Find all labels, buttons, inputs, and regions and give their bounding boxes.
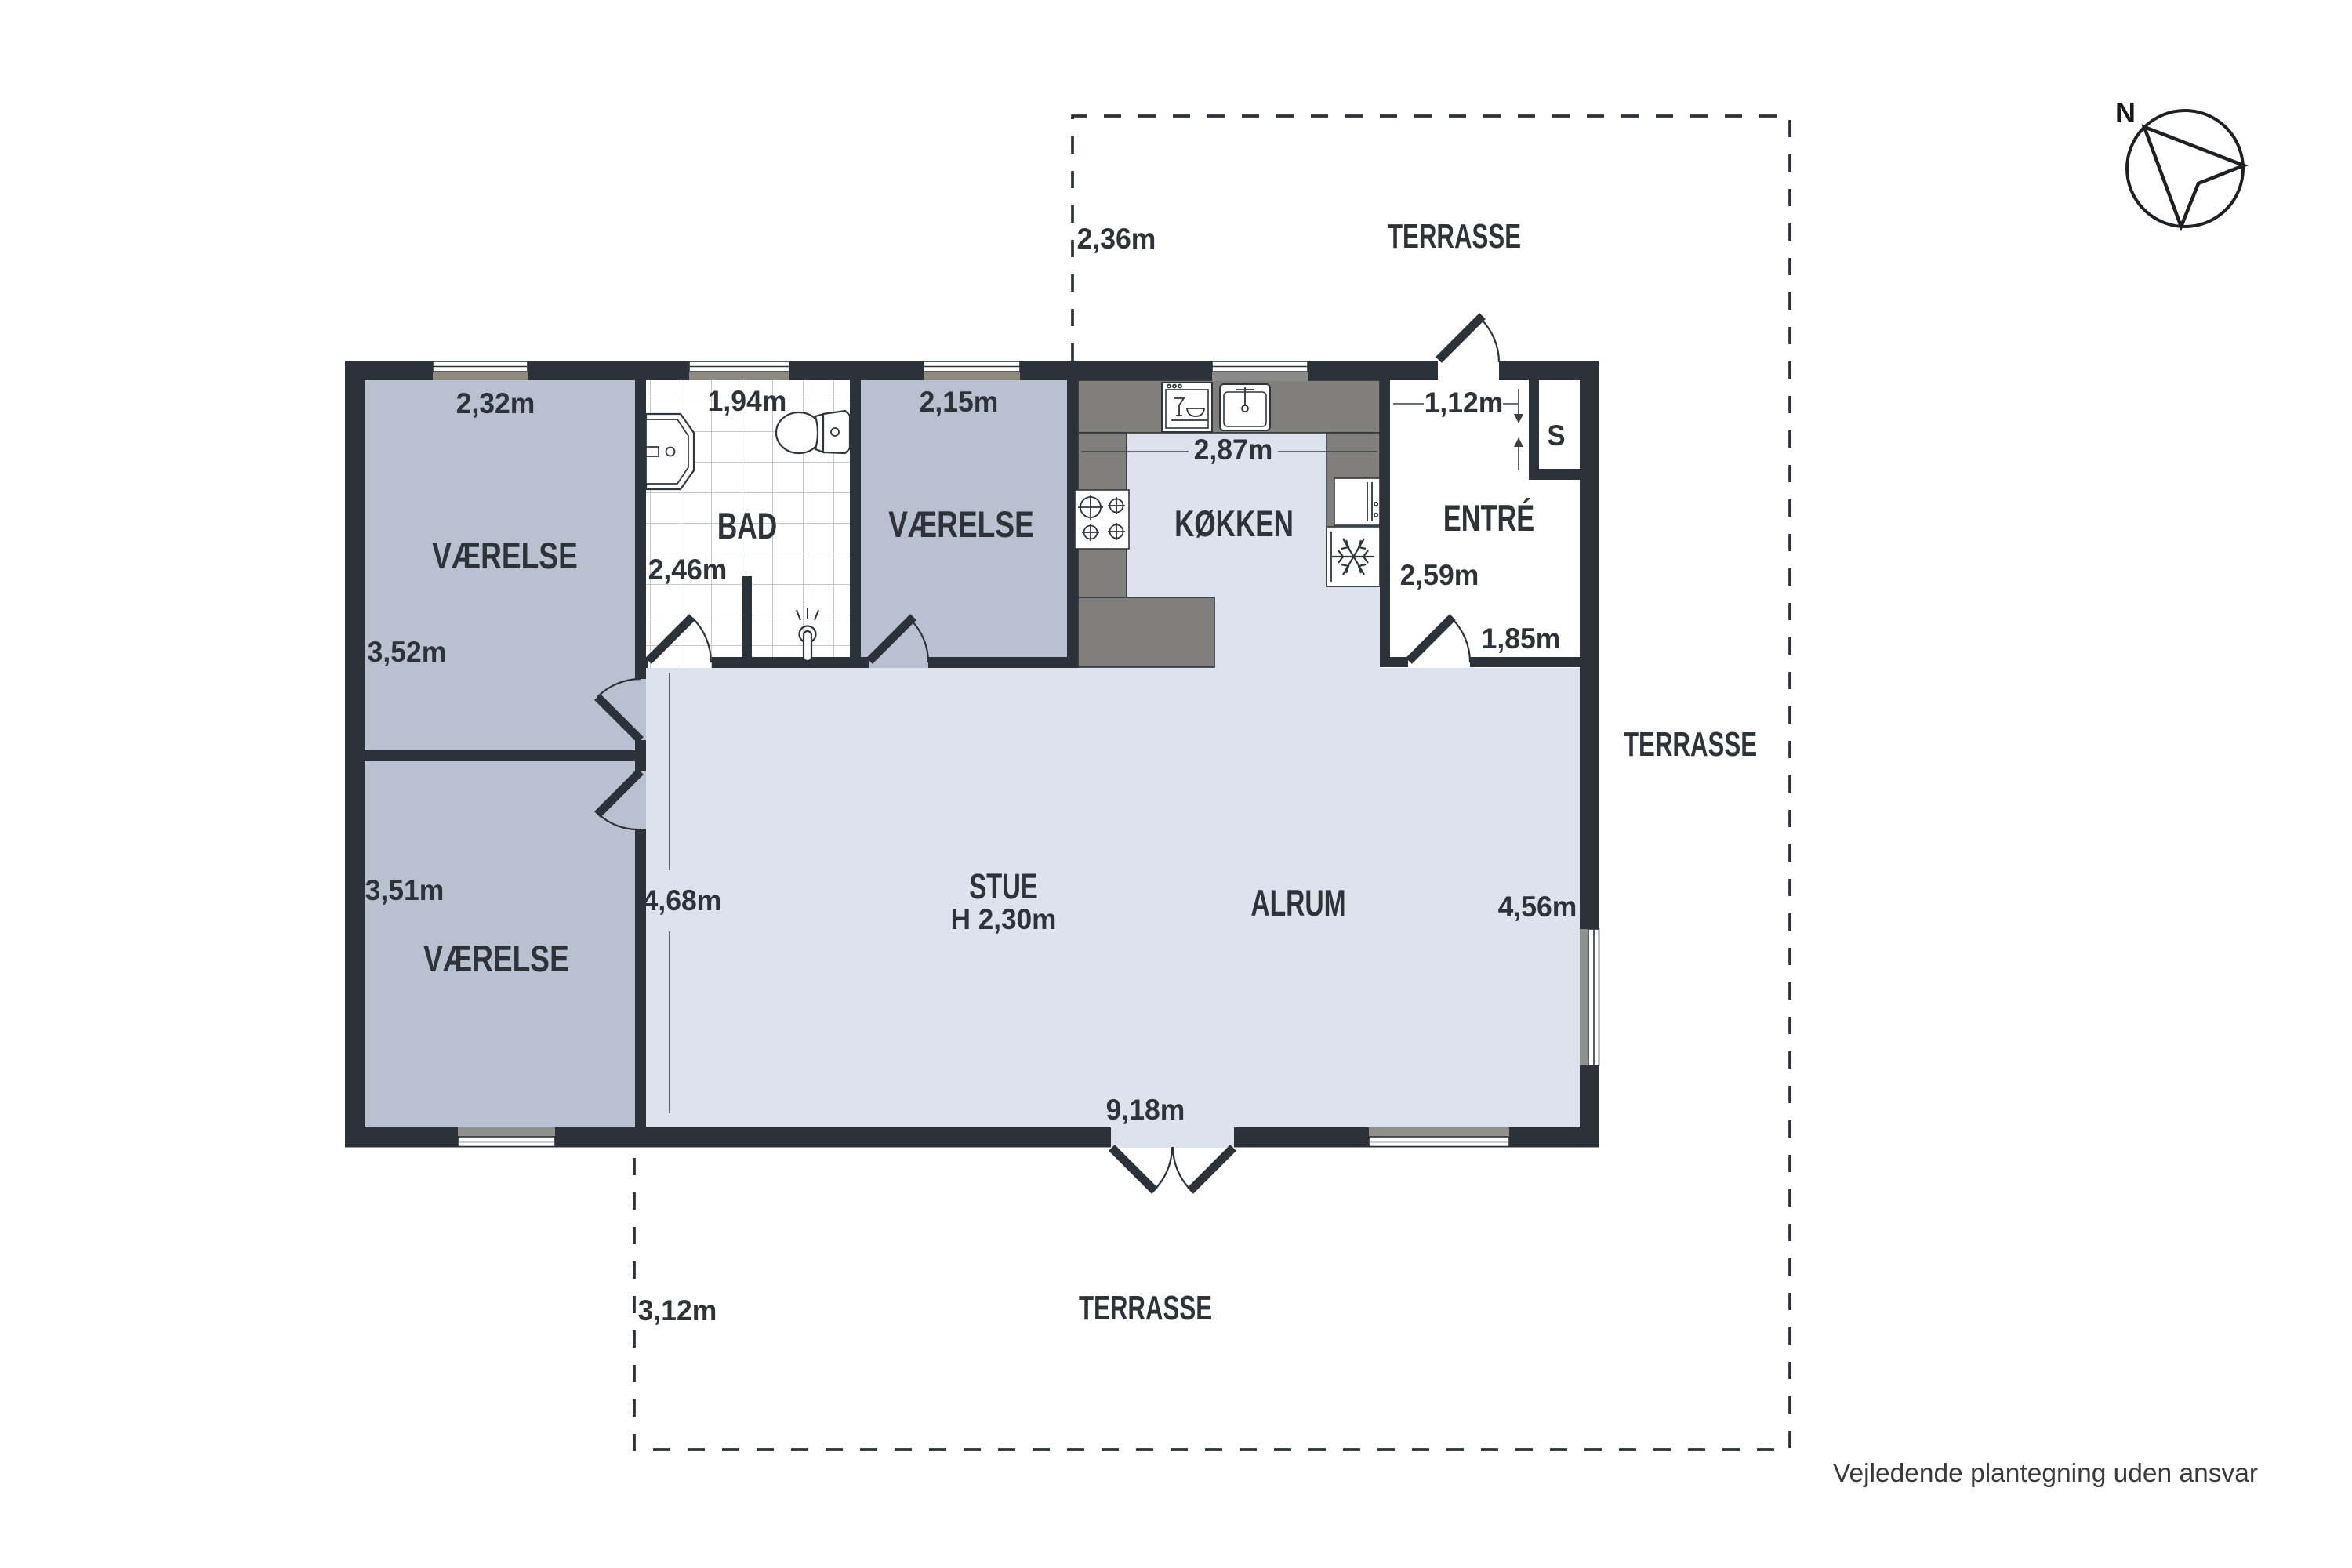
svg-text:9,18m: 9,18m <box>1106 1093 1185 1126</box>
svg-text:STUE: STUE <box>969 867 1038 906</box>
svg-text:TERRASSE: TERRASSE <box>1388 217 1521 256</box>
svg-text:3,51m: 3,51m <box>365 873 445 906</box>
svg-text:3,52m: 3,52m <box>368 635 447 668</box>
svg-text:1,94m: 1,94m <box>708 384 787 417</box>
svg-text:S: S <box>1547 419 1565 452</box>
svg-text:VÆRELSE: VÆRELSE <box>432 535 578 576</box>
svg-text:2,87m: 2,87m <box>1194 433 1273 466</box>
svg-text:TERRASSE: TERRASSE <box>1079 1289 1212 1328</box>
svg-text:4,56m: 4,56m <box>1498 890 1577 923</box>
svg-text:Vejledende plantegning uden an: Vejledende plantegning uden ansvar <box>1833 1459 2258 1488</box>
svg-text:3,12m: 3,12m <box>638 1294 717 1327</box>
svg-text:4,68m: 4,68m <box>643 884 722 916</box>
svg-text:VÆRELSE: VÆRELSE <box>423 938 569 979</box>
svg-text:TERRASSE: TERRASSE <box>1624 725 1757 764</box>
svg-text:2,46m: 2,46m <box>648 553 728 586</box>
svg-text:1,12m: 1,12m <box>1425 386 1504 419</box>
svg-text:KØKKEN: KØKKEN <box>1174 503 1294 544</box>
svg-text:2,59m: 2,59m <box>1400 558 1479 591</box>
svg-text:H 2,30m: H 2,30m <box>951 902 1057 935</box>
svg-text:2,36m: 2,36m <box>1077 222 1156 255</box>
svg-text:BAD: BAD <box>717 505 777 546</box>
svg-text:N: N <box>2115 96 2136 129</box>
svg-text:1,85m: 1,85m <box>1482 622 1561 655</box>
svg-text:VÆRELSE: VÆRELSE <box>888 504 1034 545</box>
svg-text:ENTRÉ: ENTRÉ <box>1443 498 1534 539</box>
svg-text:2,32m: 2,32m <box>456 387 535 419</box>
svg-text:ALRUM: ALRUM <box>1250 882 1345 924</box>
svg-text:2,15m: 2,15m <box>920 385 999 418</box>
